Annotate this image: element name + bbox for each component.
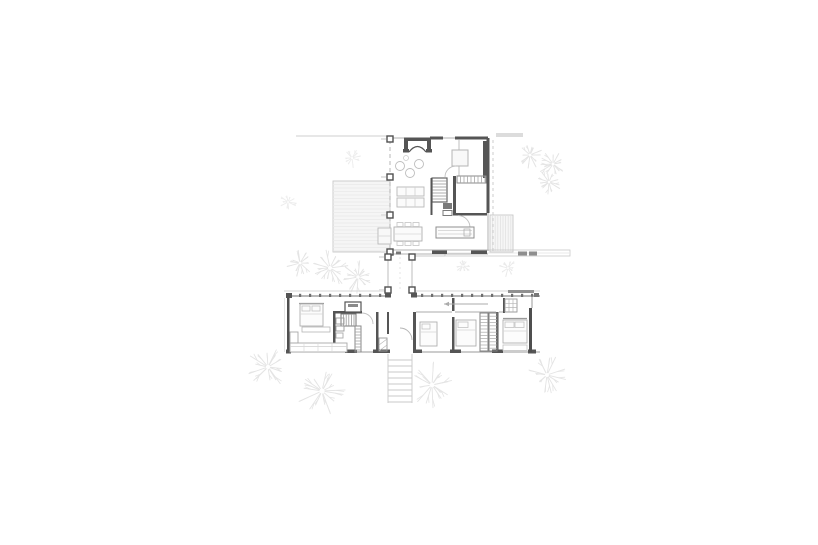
column bbox=[409, 254, 415, 260]
flue-core bbox=[348, 304, 358, 307]
tree bbox=[540, 153, 563, 174]
dim-mark bbox=[381, 176, 386, 178]
dim-mark bbox=[379, 256, 384, 258]
bench bbox=[302, 327, 330, 332]
door-swing bbox=[362, 313, 373, 324]
wall bbox=[431, 178, 433, 215]
wall bbox=[450, 350, 461, 354]
tree bbox=[281, 196, 297, 210]
chair bbox=[397, 223, 403, 227]
chair bbox=[397, 242, 403, 246]
wall bbox=[286, 293, 292, 298]
wardrobe bbox=[489, 313, 497, 351]
wall bbox=[453, 176, 456, 215]
tree bbox=[287, 250, 310, 277]
fireplace-arch bbox=[409, 147, 426, 153]
tree bbox=[529, 357, 566, 393]
wall bbox=[287, 296, 290, 352]
stair-upper bbox=[432, 178, 447, 202]
shrub bbox=[499, 261, 514, 276]
shrub bbox=[457, 260, 470, 271]
deck-east bbox=[490, 215, 513, 252]
basin bbox=[336, 333, 343, 338]
column bbox=[385, 254, 391, 260]
wall bbox=[452, 317, 455, 352]
dim-mark bbox=[381, 214, 386, 216]
chair bbox=[405, 223, 411, 227]
boardwalk-step bbox=[518, 252, 527, 256]
closet-hatch bbox=[379, 339, 387, 351]
wall bbox=[455, 137, 488, 140]
wall bbox=[430, 137, 443, 140]
tree bbox=[521, 145, 541, 168]
bath-fixture-grid bbox=[505, 299, 517, 312]
chair bbox=[413, 223, 419, 227]
shelf-tower bbox=[355, 326, 361, 352]
slider-arrow bbox=[444, 302, 449, 306]
floor-plan-page bbox=[0, 0, 818, 545]
dim-mark bbox=[381, 251, 386, 253]
wall bbox=[413, 312, 416, 352]
dim-mark bbox=[381, 138, 386, 140]
roof-edge-north-east bbox=[496, 133, 523, 137]
wc bbox=[336, 318, 344, 324]
bed bbox=[420, 322, 437, 346]
tree bbox=[249, 350, 282, 384]
appliance bbox=[443, 211, 452, 216]
lounge-chair bbox=[406, 169, 415, 178]
eave-dark-east bbox=[508, 290, 534, 293]
wall bbox=[534, 293, 539, 297]
fireplace bbox=[403, 149, 409, 153]
wall bbox=[387, 312, 389, 334]
tree bbox=[414, 362, 451, 408]
wall bbox=[529, 308, 532, 352]
sofa bbox=[290, 332, 298, 343]
sofa bbox=[397, 198, 424, 207]
chair bbox=[413, 242, 419, 246]
column bbox=[387, 174, 393, 180]
shelf bbox=[457, 176, 486, 183]
floor-plan-drawing bbox=[0, 0, 818, 545]
fireplace bbox=[404, 138, 431, 142]
wall bbox=[376, 312, 379, 352]
wall bbox=[471, 251, 487, 255]
sofa bbox=[290, 343, 347, 352]
column bbox=[387, 136, 393, 142]
bath-fixture bbox=[505, 299, 517, 312]
chair bbox=[405, 242, 411, 246]
tree bbox=[345, 150, 361, 168]
bed bbox=[456, 320, 476, 346]
sofa bbox=[397, 187, 424, 196]
column bbox=[385, 287, 391, 293]
basin bbox=[336, 326, 344, 331]
column bbox=[409, 287, 415, 293]
wall bbox=[483, 141, 487, 178]
stair-treads bbox=[388, 360, 412, 402]
tree bbox=[313, 250, 348, 284]
side-table bbox=[404, 156, 409, 161]
wall bbox=[487, 138, 490, 213]
column bbox=[387, 212, 393, 218]
boardwalk-step bbox=[529, 252, 537, 256]
door-swing bbox=[400, 328, 412, 340]
wall bbox=[411, 293, 417, 298]
lounge-chair bbox=[396, 162, 405, 171]
fireplace bbox=[426, 149, 432, 153]
bed bbox=[300, 304, 323, 326]
wardrobe bbox=[480, 313, 488, 351]
table bbox=[452, 150, 468, 166]
dim-mark bbox=[379, 289, 384, 291]
appliance bbox=[443, 203, 452, 209]
tree bbox=[299, 372, 346, 414]
door-swing bbox=[445, 166, 456, 177]
wall bbox=[432, 251, 447, 255]
wall bbox=[396, 252, 401, 255]
door-swing bbox=[458, 216, 470, 228]
tree bbox=[538, 172, 560, 195]
bench bbox=[503, 345, 527, 351]
wall bbox=[385, 293, 391, 298]
wall bbox=[452, 298, 455, 311]
lounge-chair bbox=[415, 160, 424, 169]
